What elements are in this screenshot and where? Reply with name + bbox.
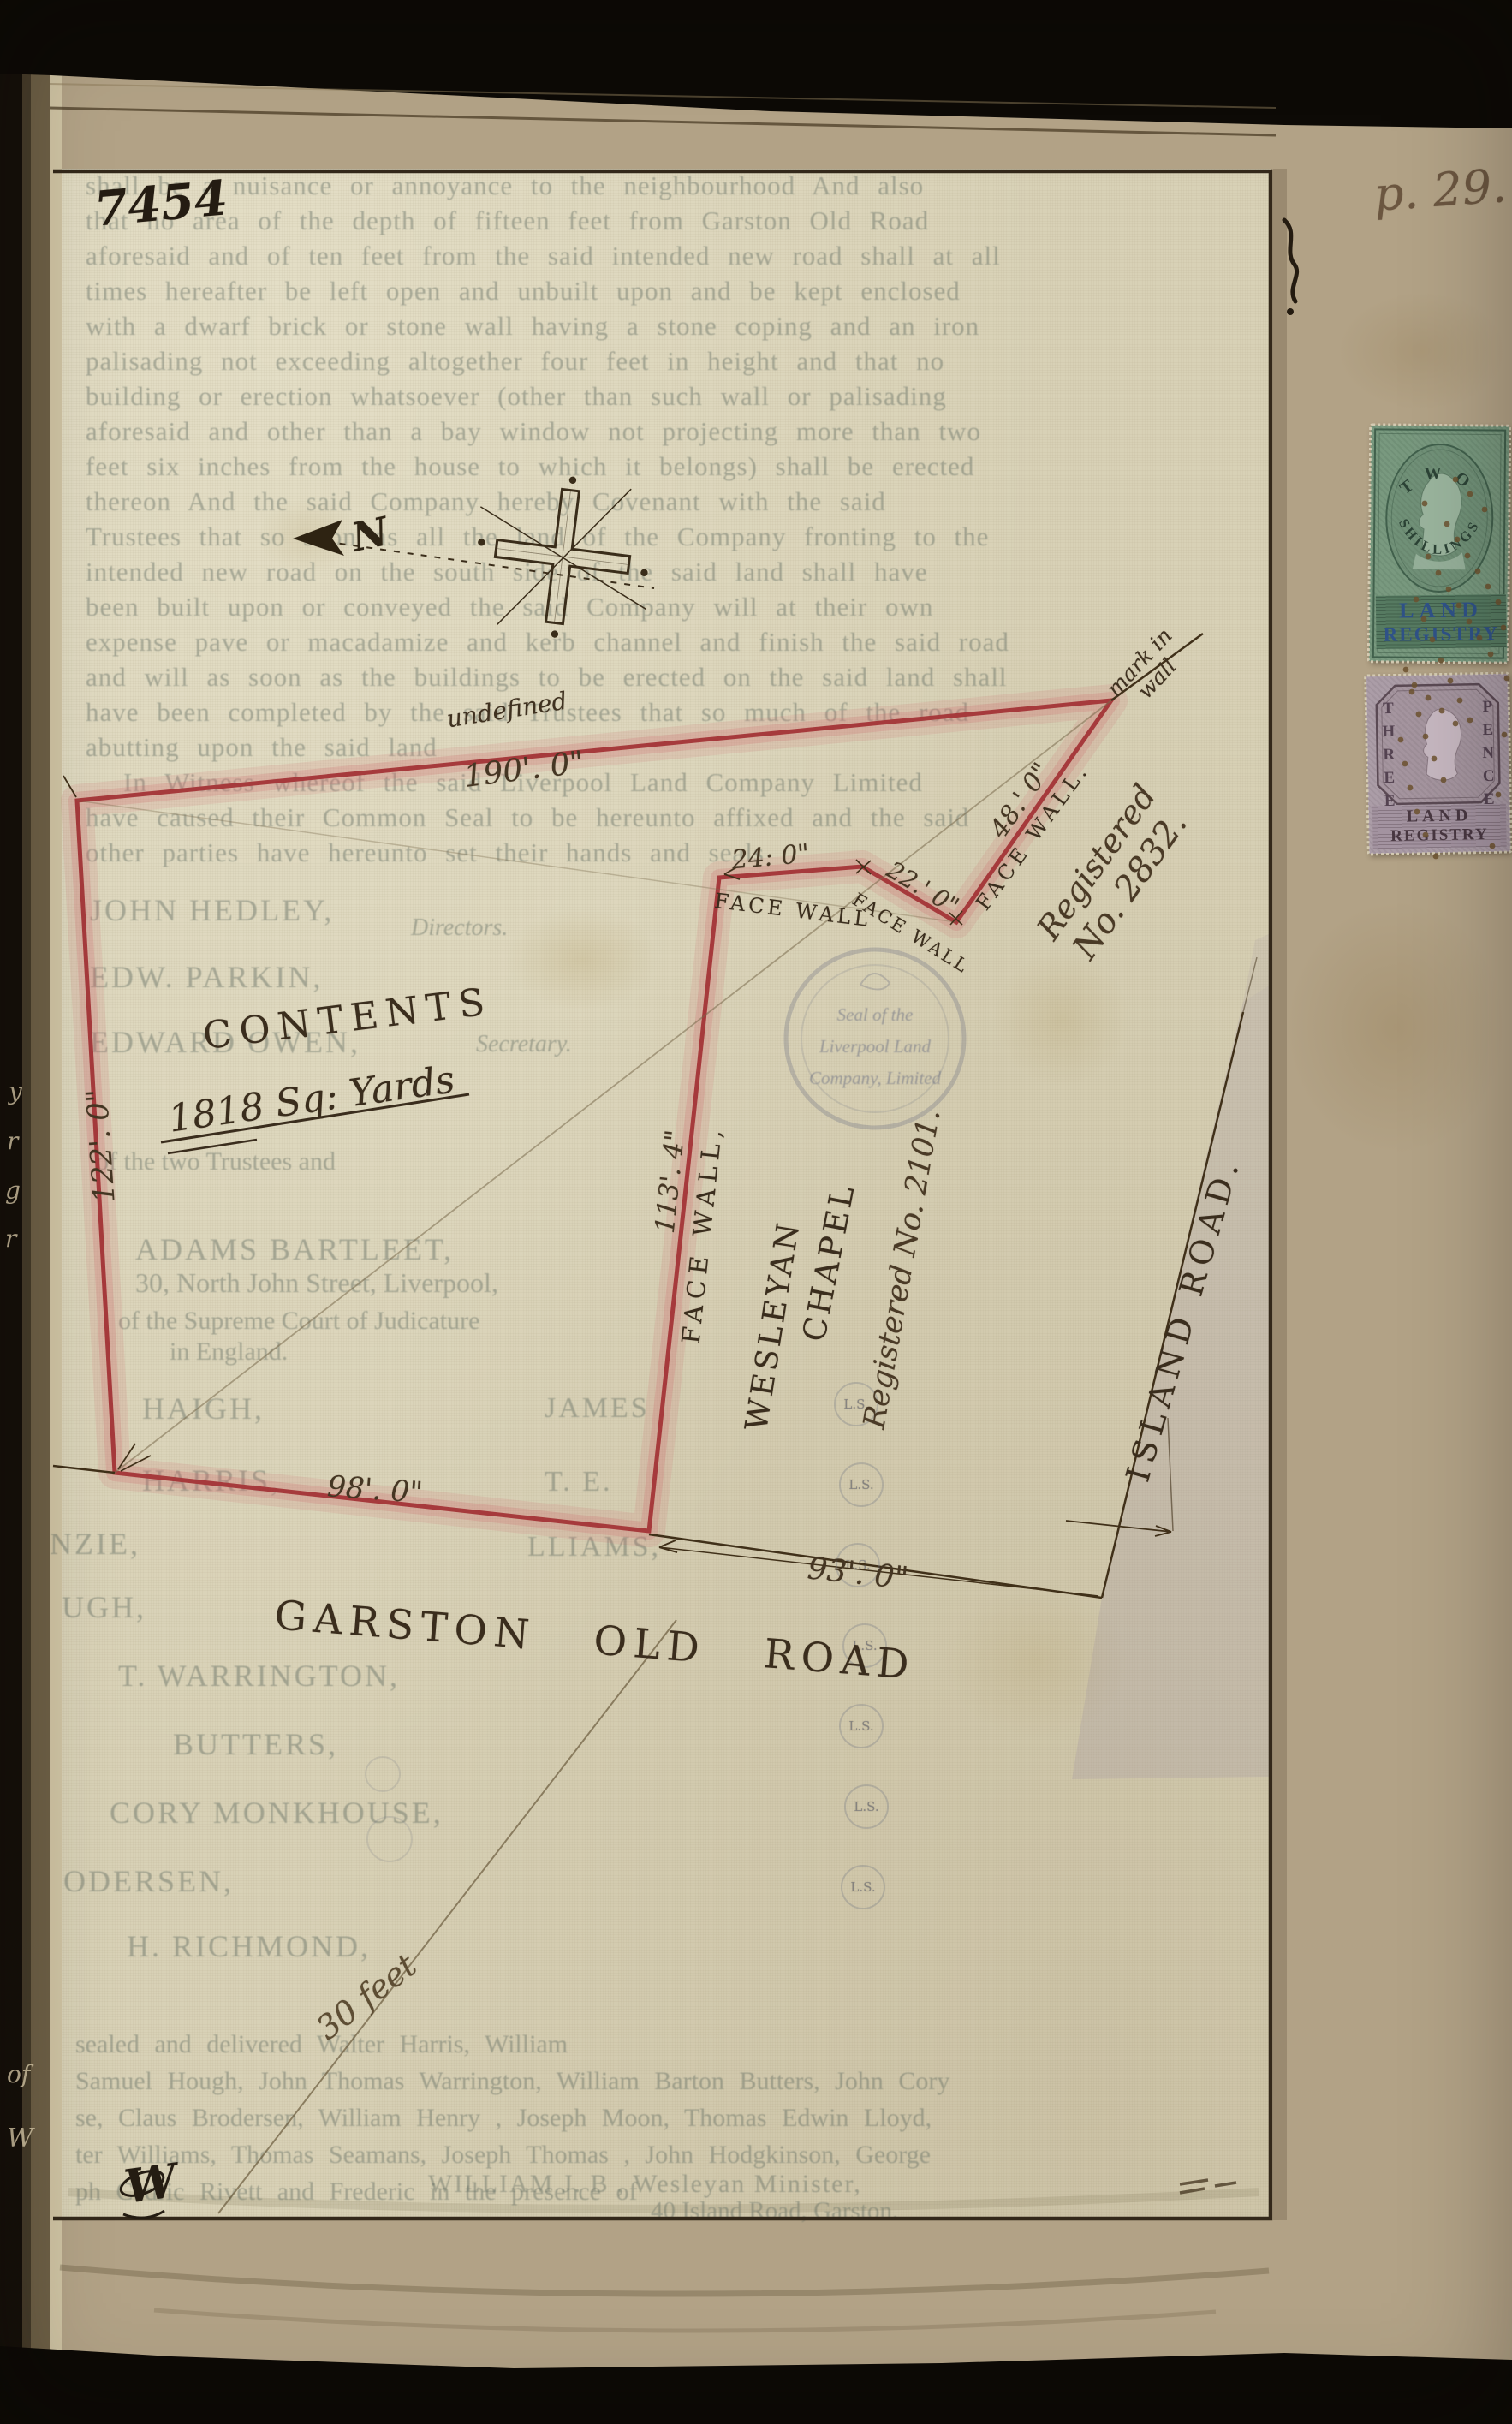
bleed-line: abutting upon the said land [86,730,1237,765]
bleed-line: sealed and delivered Walter Harris, Will… [75,2026,1231,2063]
foxing-stain [1284,899,1507,1156]
queen-victoria-profile [1423,709,1462,781]
ref-number: 7454 [92,170,229,237]
company-seal-text: Seal of the Liverpool Land Company, Limi… [764,999,986,1093]
foxing-stain [1336,291,1507,411]
bleed-name: 30, North John Street, Liverpool, [135,1267,498,1299]
bleed-name: HARRIS, [142,1462,281,1498]
stamp-denomination-word1: THREE [1378,700,1399,801]
bleed-name: ODERSEN, [63,1863,234,1899]
scanned-deed-page: shall be a nuisance or annoyance to the … [0,0,1512,2424]
bleed-line: intended new road on the south side of t… [86,554,1237,589]
bleed-line: aforesaid and of ten feet from the said … [86,238,1237,273]
bleed-name: UGH, [62,1589,146,1625]
stamp-caption: LAND REGISTRY [1372,804,1507,849]
paper-wrinkle [60,2267,1269,2294]
bleed-name: JAMES [545,1392,650,1425]
page-fold-line [50,108,1276,135]
bleed-line: with a dwarf brick or stone wall having … [86,308,1237,343]
bleed-line: shall be a nuisance or annoyance to the … [86,168,1237,203]
bleed-name: LLIAMS, [527,1531,661,1563]
bleed-name: of the Supreme Court of Judicature [118,1307,479,1336]
bleed-line: times hereafter be left open and unbuilt… [86,273,1237,308]
bleed-line: Trustees that so soon as all the land of… [86,519,1237,554]
bleed-name: H. RICHMOND, [127,1928,371,1964]
stamp-denomination-word2: PENCE [1478,698,1498,799]
bleed-line: and will as soon as the buildings to be … [86,659,1237,694]
bleed-line: feet six inches from the house to which … [86,449,1237,484]
bleed-line: palisading not exceeding altogether four… [86,343,1237,378]
bleed-name: CORY MONKHOUSE, [110,1795,443,1831]
ls-seal: L.S. [854,1799,878,1814]
bleed-name: Directors. [411,914,508,942]
bleed-line: building or erection whatsoever (other t… [86,378,1237,414]
margin-fragment: r [5,1224,16,1253]
dim-98: 98'. 0" [326,1469,424,1510]
bleed-name: JOHN HEDLEY, [90,892,334,928]
bleed-line: se, Claus Brodersen, William Henry , Jos… [75,2099,1231,2136]
bleed-name: of the two Trustees and [96,1147,336,1176]
bottom-black-band [0,2346,1512,2424]
ink-flourish [1284,220,1297,301]
bleed-name: Secretary. [476,1031,572,1058]
bleed-line: been built upon or conveyed the said Com… [86,589,1237,624]
land-registry-stamp-three-pence: THREE PENCE LAND REGISTRY [1366,674,1511,855]
bleed-line: other parties have hereunto set their ha… [86,835,1237,870]
bleed-name: ADAMS BARTLEET, [135,1231,454,1267]
bleed-name: T. WARRINGTON, [118,1658,400,1694]
bleed-line: aforesaid and other than a bay window no… [86,414,1237,449]
bleed-line: thereon And the said Company hereby Cove… [86,484,1237,519]
margin-fragment: of [7,2060,30,2088]
bleed-line: ter Williams, Thomas Seamans, Joseph Tho… [75,2136,1231,2173]
margin-fragment: W [7,2123,33,2153]
ls-seal: L.S. [850,1879,875,1895]
bleed-minister-line: WILLIAM J. B , Wesleyan Minister, [428,2170,862,2199]
bleed-name: T. E. [545,1466,613,1498]
ls-seal: L.S. [848,1477,873,1492]
bleedthrough-covenant-paragraph: shall be a nuisance or annoyance to the … [86,168,1237,870]
sheet-edge-shadow [1273,169,1287,2220]
land-registry-stamp-two-shillings: TWO SHILLINGS LAND REGISTRY [1369,425,1509,662]
bleed-name: EDW. PARKIN, [90,959,323,995]
bleed-line: Samuel Hough, John Thomas Warrington, Wi… [75,2063,1231,2099]
bleed-name: HAIGH, [142,1391,265,1426]
margin-fragment: r [7,1127,18,1155]
bleed-name: BUTTERS, [173,1726,338,1762]
margin-fragment: y [9,1077,22,1105]
page-stack-edge [22,48,50,2370]
bleed-line: expense pave or macadamize and kerb chan… [86,624,1237,659]
bleed-line: that no area of the depth of fifteen fee… [86,203,1237,238]
bleed-line: have been completed by the said Trustees… [86,694,1237,730]
bleed-address-line: 40 Island Road, Garston. [651,2197,898,2225]
surveyor-monogram: W [122,2153,181,2214]
page-number: p. 29. [1372,158,1509,222]
ls-seal: L.S. [848,1718,873,1734]
margin-fragment: g [5,1176,21,1205]
top-black-band [0,0,1512,128]
bleed-name: NZIE, [50,1526,140,1562]
stamp-overprint: LAND REGISTRY [1376,594,1507,649]
bleed-name: in England. [170,1337,288,1367]
